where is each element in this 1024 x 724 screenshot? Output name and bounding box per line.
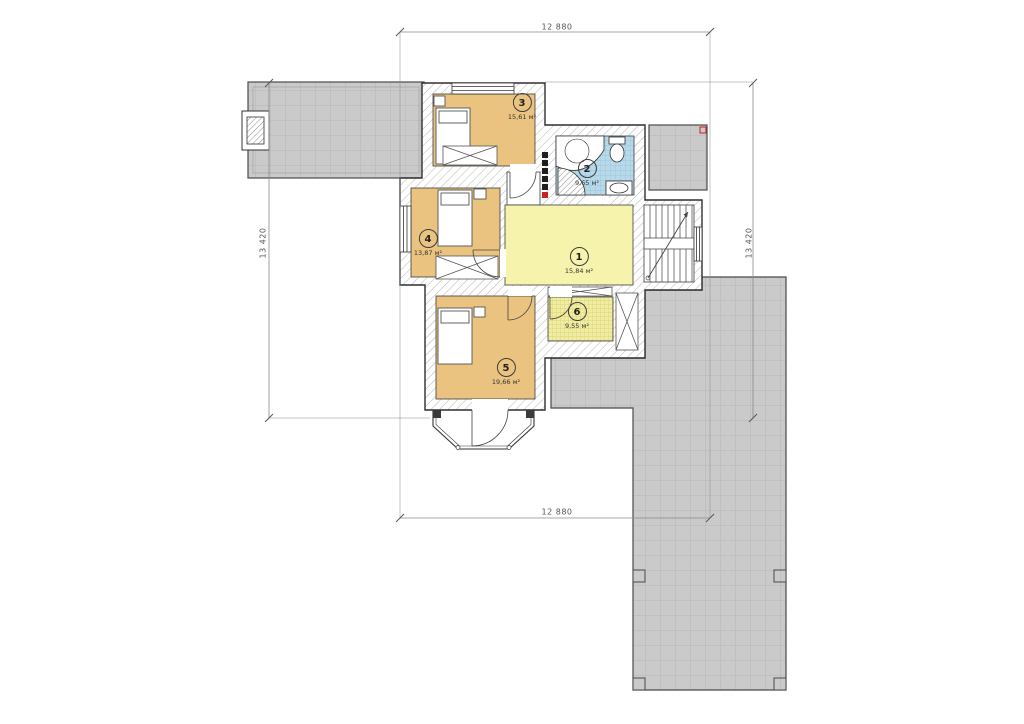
left-roof (248, 82, 424, 178)
sink (606, 181, 632, 195)
bay-post-right (526, 410, 534, 418)
top-right-roof (649, 125, 707, 190)
door-bathroom (585, 196, 609, 204)
room-6-interior (548, 297, 613, 341)
chimney (242, 111, 269, 150)
bay-post-left (433, 410, 441, 418)
hall-interior (505, 205, 633, 285)
closet-room6-right (616, 293, 638, 350)
toilet (609, 137, 625, 162)
wardrobe-room3 (443, 146, 497, 165)
vestibule-interior (507, 172, 540, 205)
window-room3-top (452, 83, 514, 94)
red-marker-vent (542, 192, 548, 198)
window-stairs-right (694, 227, 702, 261)
window-room4-left (400, 206, 411, 252)
floorplan-drawing (0, 0, 1024, 724)
floorplan-canvas: 12 880 12 880 13 420 13 420 1 15,84 м² 2… (0, 0, 1024, 724)
wardrobe-room4 (436, 256, 498, 279)
